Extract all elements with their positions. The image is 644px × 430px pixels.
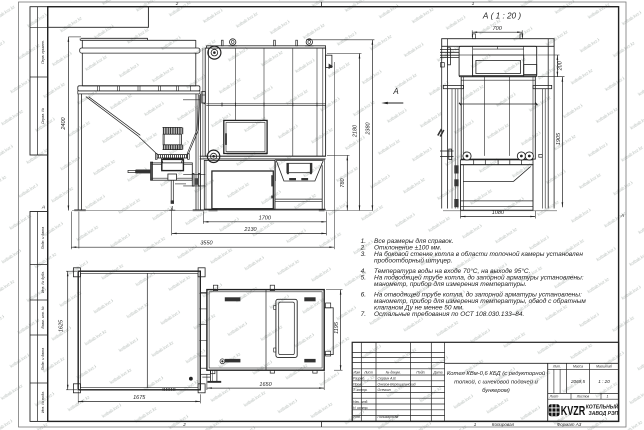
svg-text:Остальные требования по ОСТ 10: Остальные требования по ОСТ 108.030.133–… [374,310,525,318]
svg-text:Масштаб: Масштаб [596,365,612,369]
svg-text:Лит.: Лит. [552,365,561,369]
svg-text:Сергин А.В.: Сергин А.В. [378,377,397,381]
svg-text:№ докум.: № докум. [386,370,401,374]
svg-text:А: А [620,213,624,219]
svg-text:1905: 1905 [556,132,562,145]
svg-text:Поликарпова: Поликарпова [378,415,399,419]
svg-text:пробоотборный штуцер.: пробоотборный штуцер. [374,257,453,265]
svg-text:А: А [41,205,45,211]
svg-text:Пров.: Пров. [353,382,362,386]
svg-text:3.: 3. [361,251,367,258]
svg-text:1080: 1080 [492,210,505,216]
svg-text:700: 700 [493,26,503,32]
svg-text:2380: 2380 [365,121,371,135]
svg-text:1 : 20: 1 : 20 [598,379,610,384]
svg-text:А: А [392,87,398,96]
svg-text:Н. контр.: Н. контр. [353,406,368,410]
svg-text:2: 2 [182,422,186,427]
svg-text:780: 780 [340,177,346,187]
svg-text:1650: 1650 [259,382,272,388]
svg-text:Лист: Лист [549,395,559,399]
svg-text:Лист: Лист [363,370,373,374]
svg-text:3550: 3550 [200,241,213,247]
svg-text:КОТЕЛЬНЫЙ: КОТЕЛЬНЫЙ [586,403,619,411]
svg-text:1700: 1700 [259,216,272,222]
svg-text:Листов: Листов [576,395,590,399]
svg-text:Подп. и дата: Подп. и дата [41,227,45,250]
svg-text:2069,5: 2069,5 [570,379,585,384]
svg-text:Нач. отд.: Нач. отд. [353,400,368,404]
svg-text:6.: 6. [361,291,367,298]
svg-text:Т. контр.: Т. контр. [353,388,368,392]
svg-text:Подп.: Подп. [416,370,425,374]
svg-text:Копировал: Копировал [492,422,515,427]
svg-text:Онегов-Верещагинский: Онегов-Верещагинский [378,382,416,386]
svg-text:Дата: Дата [433,370,443,374]
svg-text:топкой, с шнековой подачей и: топкой, с шнековой подачей и [454,378,538,385]
svg-text:манометр, прибор для измерения: манометр, прибор для измерения температу… [374,280,527,288]
svg-text:Изм: Изм [354,370,361,374]
svg-text:Взам. инв. №: Взам. инв. № [41,306,45,328]
svg-text:Формат А3: Формат А3 [557,422,582,427]
svg-text:5.: 5. [361,275,367,282]
svg-text:Инв. № дубл.: Инв. № дубл. [41,271,45,293]
svg-text:ЗАВОД РЭП: ЗАВОД РЭП [589,411,619,417]
svg-text:Подп. и дата: Подп. и дата [41,348,45,371]
svg-text:1625: 1625 [58,319,64,332]
svg-text:Котел КВм-0,6 КБД (с редукторн: Котел КВм-0,6 КБД (с редукторной [447,370,546,377]
svg-text:1: 1 [607,395,609,399]
svg-text:200: 200 [557,60,563,71]
svg-text:2180: 2180 [352,124,358,138]
svg-text:А ( 1 : 20 ): А ( 1 : 20 ) [482,12,521,21]
svg-text:Осечкин: Осечкин [378,388,391,392]
svg-text:Масса: Масса [573,365,583,369]
svg-text:2130: 2130 [243,227,257,233]
svg-text:Перв. примен.: Перв. примен. [41,40,45,64]
svg-text:бункером): бункером) [482,388,510,394]
svg-text:1195: 1195 [334,321,340,334]
svg-text:7.: 7. [361,311,367,318]
svg-text:2400: 2400 [61,116,67,130]
svg-text:1675: 1675 [133,395,146,401]
svg-text:Разраб.: Разраб. [353,377,365,381]
svg-text:2: 2 [175,1,179,6]
svg-text:KVZR: KVZR [561,403,586,418]
svg-text:Справ. №: Справ. № [41,108,45,124]
svg-text:Инв. № подл.: Инв. № подл. [41,391,45,413]
svg-text:Утв.: Утв. [353,415,361,419]
